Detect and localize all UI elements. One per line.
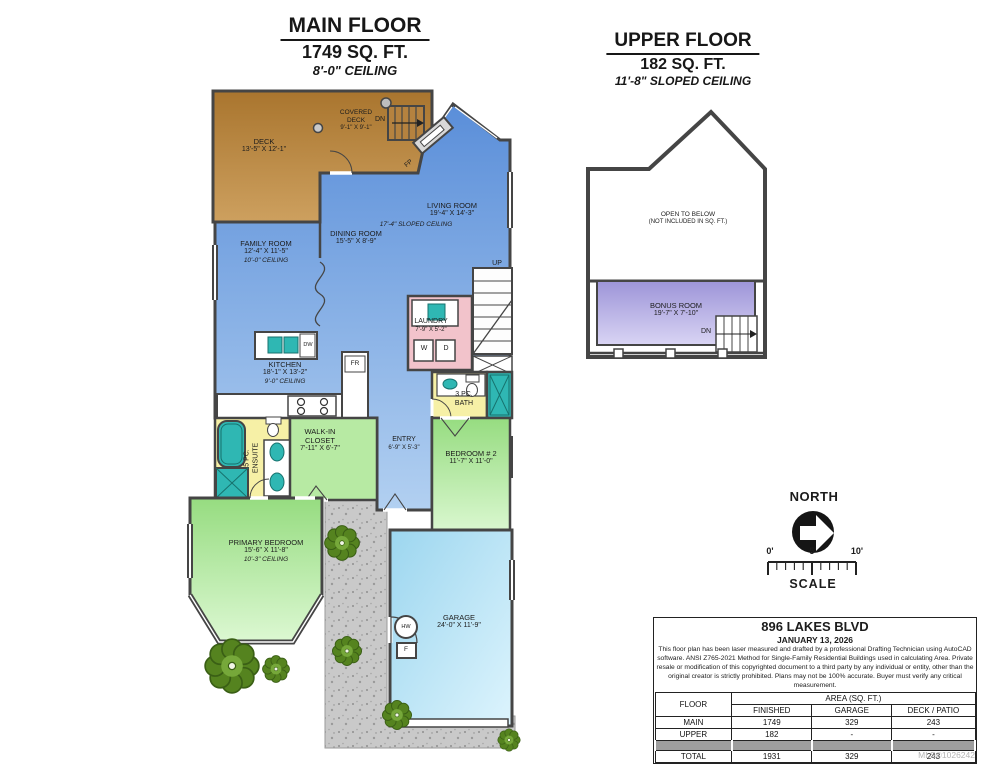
main-floor-cell: MAIN (655, 717, 732, 729)
plan-date: JANUARY 13, 2026 (654, 635, 976, 645)
f-label: F (404, 646, 408, 654)
wall-post (666, 349, 675, 358)
area-header: AREA (SQ. FT.) (732, 693, 975, 705)
open-line2: (NOT INCLUDED IN SQ. FT.) (649, 219, 728, 226)
bath-line2: BATH (455, 400, 473, 409)
garage-door (394, 719, 508, 727)
upper-finished-cell: 182 (732, 729, 812, 741)
primary-ceiling: 10'-3" CEILING (229, 556, 304, 564)
main-garage-cell: 329 (812, 717, 892, 729)
family-dims: 12'-4" X 11'-5" (240, 248, 291, 257)
garage-dims: 24'-0" X 11'-9" (437, 622, 481, 631)
entry-dims: 6'-9" X 5'-3" (388, 445, 419, 452)
col-finished: FINISHED (732, 705, 812, 717)
floorplan-page: MAIN FLOOR 1749 SQ. FT. 8'-0" CEILING UP… (0, 0, 994, 768)
primary-name: PRIMARY BEDROOM (229, 538, 304, 547)
family-name: FAMILY ROOM (240, 239, 291, 248)
bedroom2-area (432, 418, 510, 535)
north-label: NORTH (790, 489, 839, 505)
deck-name: DECK (242, 137, 286, 146)
up-label: UP (492, 260, 502, 269)
upper-floor-name: UPPER FLOOR (606, 30, 759, 55)
spacer-cell (732, 741, 812, 751)
bath-label: 3 PC. BATH (455, 391, 473, 408)
scale-tick-5: 5' (809, 546, 816, 557)
main-floor-title: MAIN FLOOR 1749 SQ. FT. 8'-0" CEILING (281, 14, 430, 78)
table-header-row: FLOOR AREA (SQ. FT.) (655, 693, 975, 705)
scale-label: SCALE (789, 577, 836, 592)
col-garage: GARAGE (812, 705, 892, 717)
floor-header: FLOOR (655, 693, 732, 717)
covered-deck-label: COVERED DECK 9'-1" X 9'-1" (340, 109, 372, 132)
total-finished-cell: 1931 (732, 751, 812, 763)
col-deck-patio: DECK / PATIO (892, 705, 975, 717)
ensuite-line2: ENSUITE (252, 443, 261, 473)
garage-label: GARAGE 24'-0" X 11'-9" (437, 613, 481, 631)
dryer-label: D (443, 345, 448, 354)
info-box: 896 LAKES BLVD JANUARY 13, 2026 This flo… (653, 617, 977, 764)
bedroom2-label: BEDROOM # 2 11'-7" X 11'-0" (445, 449, 496, 467)
main-deck-cell: 243 (892, 717, 975, 729)
spacer-cell (812, 741, 892, 751)
primary-bedroom-label: PRIMARY BEDROOM 15'-6" X 11'-8" 10'-3" C… (229, 538, 304, 564)
spacer-cell (655, 741, 732, 751)
stairs-up (473, 268, 512, 374)
upper-deck-cell: - (892, 729, 975, 741)
bonus-dims: 19'-7" X 7'-10" (650, 310, 702, 319)
upper-floor-plan (588, 112, 765, 358)
deck-dims: 13'-5" X 12'-1" (242, 146, 286, 155)
ensuite-label: 5 PC. ENSUITE (243, 443, 260, 473)
table-row-main: MAIN 1749 329 243 (655, 717, 975, 729)
closet-dims: 7'-11" X 6'-7" (300, 445, 340, 454)
living-ceiling-label: 17'-4" SLOPED CEILING (380, 221, 453, 229)
deck-label: DECK 13'-5" X 12'-1" (242, 137, 286, 155)
dn-label-main: DN (375, 116, 385, 125)
scale-tick-0: 0' (766, 546, 773, 557)
ensuite-line1: 5 PC. (243, 443, 252, 473)
stairs-down-upper (716, 316, 757, 352)
kitchen-dims: 18'-1" X 13'-2" (263, 369, 307, 378)
bonus-name: BONUS ROOM (650, 301, 702, 310)
dn-label-upper: DN (701, 328, 711, 337)
deck-post (314, 124, 323, 133)
kitchen-label: KITCHEN 18'-1" X 13'-2" 9'-0" CEILING (263, 360, 307, 386)
main-floor-plan (190, 91, 520, 751)
closet-label: WALK-IN CLOSET 7'-11" X 6'-7" (300, 427, 340, 454)
dining-room-label: DINING ROOM 15'-5" X 8'-9" (330, 229, 382, 247)
disclaimer: This floor plan has been laser measured … (654, 645, 976, 692)
fr-label: FR (351, 360, 360, 368)
upper-floor-area: 182 SQ. FT. (606, 56, 759, 74)
primary-dims: 15'-6" X 11'-8" (229, 547, 304, 556)
upper-floor-cell: UPPER (655, 729, 732, 741)
bedroom2-dims: 11'-7" X 11'-0" (445, 458, 496, 467)
closet-line1: WALK-IN (300, 427, 340, 436)
family-room-label: FAMILY ROOM 12'-4" X 11'-5" 10'-0" CEILI… (240, 239, 291, 265)
main-finished-cell: 1749 (732, 717, 812, 729)
laundry-name: LAUNDRY (414, 318, 447, 327)
scale-tick-10: 10' (851, 546, 863, 557)
open-to-below-label: OPEN TO BELOW (NOT INCLUDED IN SQ. FT.) (649, 211, 728, 226)
mls-number: MLS®1026242 (918, 750, 975, 760)
open-line1: OPEN TO BELOW (649, 211, 728, 219)
main-floor-area: 1749 SQ. FT. (281, 42, 430, 63)
covered-deck-line1: COVERED (340, 109, 372, 117)
living-name: LIVING ROOM (427, 201, 477, 210)
garage-name: GARAGE (437, 613, 481, 622)
entry-name: ENTRY (388, 436, 419, 445)
family-ceiling: 10'-0" CEILING (240, 257, 291, 265)
total-garage-cell: 329 (812, 751, 892, 763)
entry-label: ENTRY 6'-9" X 5'-3" (388, 436, 419, 452)
laundry-label: LAUNDRY 7'-9" X 5'-2" (414, 318, 447, 334)
kitchen-ceiling: 9'-0" CEILING (263, 378, 307, 386)
closet-line2: CLOSET (300, 436, 340, 445)
scale-ruler-icon (768, 562, 856, 575)
wall-post (614, 349, 623, 358)
hw-label: HW (401, 624, 410, 631)
living-room-label: LIVING ROOM 19'-4" X 14'-3" (427, 201, 477, 219)
covered-deck-dims: 9'-1" X 9'-1" (340, 125, 372, 132)
wall-post (718, 349, 727, 358)
total-floor-cell: TOTAL (655, 751, 732, 763)
covered-deck-line2: DECK (340, 117, 372, 125)
upper-floor-title: UPPER FLOOR 182 SQ. FT. 11'-8" SLOPED CE… (606, 30, 759, 88)
dining-name: DINING ROOM (330, 229, 382, 238)
upper-garage-cell: - (812, 729, 892, 741)
main-floor-ceiling: 8'-0" CEILING (281, 63, 430, 78)
upper-floor-ceiling: 11'-8" SLOPED CEILING (606, 74, 759, 88)
address: 896 LAKES BLVD (654, 618, 976, 635)
shower (487, 372, 512, 418)
kitchen-name: KITCHEN (263, 360, 307, 369)
bedroom2-name: BEDROOM # 2 (445, 449, 496, 458)
washer-label: W (421, 345, 428, 354)
bonus-room-label: BONUS ROOM 19'-7" X 7'-10" (650, 301, 702, 319)
bath-line1: 3 PC. (455, 391, 473, 400)
table-row-upper: UPPER 182 - - (655, 729, 975, 741)
dw-label: DW (303, 342, 312, 349)
dining-dims: 15'-5" X 8'-9" (330, 238, 382, 247)
main-floor-name: MAIN FLOOR (281, 14, 430, 41)
living-dims: 19'-4" X 14'-3" (427, 210, 477, 219)
laundry-dims: 7'-9" X 5'-2" (414, 327, 447, 334)
